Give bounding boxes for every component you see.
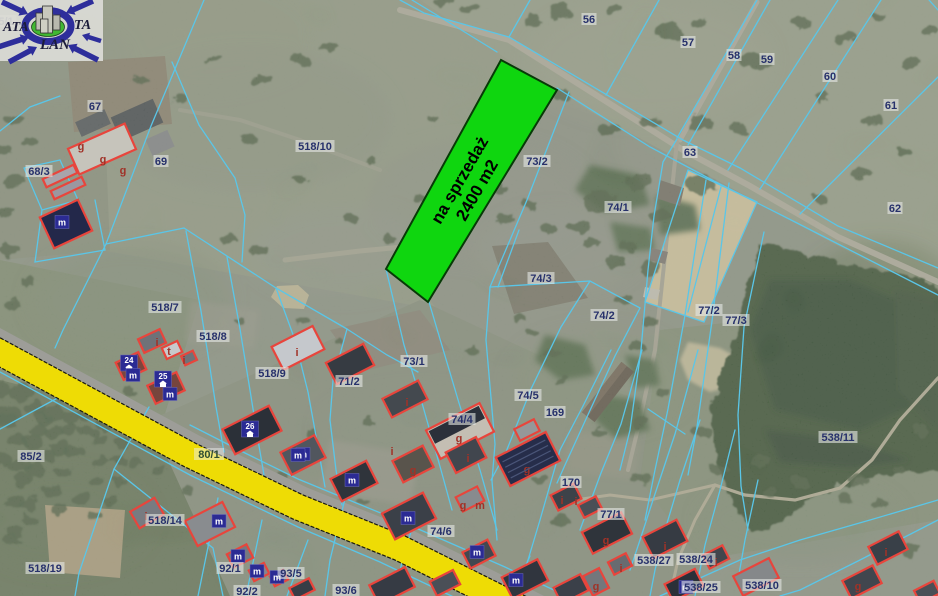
svg-text:518/10: 518/10 [298, 141, 332, 153]
svg-text:m: m [58, 218, 66, 228]
svg-text:i: i [295, 347, 298, 359]
svg-text:69: 69 [155, 156, 167, 168]
svg-text:74/4: 74/4 [451, 414, 473, 426]
svg-text:i: i [390, 446, 393, 458]
svg-text:i: i [466, 453, 469, 465]
svg-text:m: m [475, 500, 485, 512]
svg-text:63: 63 [684, 147, 696, 159]
svg-text:518/9: 518/9 [258, 368, 286, 380]
svg-text:g: g [120, 165, 127, 177]
svg-text:74/5: 74/5 [517, 390, 538, 402]
svg-text:i: i [182, 355, 185, 367]
svg-text:74/2: 74/2 [593, 310, 614, 322]
svg-text:71/2: 71/2 [338, 376, 359, 388]
svg-text:93/5: 93/5 [280, 568, 301, 580]
svg-text:i: i [619, 563, 622, 575]
svg-text:61: 61 [885, 100, 897, 112]
svg-text:g: g [78, 141, 85, 153]
svg-text:57: 57 [682, 37, 694, 49]
svg-text:92/1: 92/1 [219, 563, 240, 575]
svg-text:538/11: 538/11 [821, 432, 854, 444]
svg-text:m: m [253, 567, 261, 577]
svg-text:58: 58 [728, 50, 740, 62]
svg-text:59: 59 [761, 54, 773, 66]
svg-text:m: m [404, 514, 412, 524]
svg-text:g: g [855, 581, 862, 593]
svg-text:85/2: 85/2 [20, 451, 41, 463]
svg-text:538/10: 538/10 [745, 580, 779, 592]
svg-text:92/2: 92/2 [236, 586, 257, 596]
svg-text:m: m [166, 390, 174, 400]
svg-text:74/3: 74/3 [530, 273, 551, 285]
svg-text:26: 26 [246, 422, 255, 431]
svg-text:TA: TA [74, 18, 91, 33]
svg-text:m: m [473, 548, 481, 558]
svg-text:i: i [155, 337, 158, 349]
svg-text:169: 169 [546, 407, 564, 419]
svg-text:77/2: 77/2 [698, 305, 719, 317]
svg-text:538/25: 538/25 [684, 582, 718, 594]
svg-text:73/2: 73/2 [526, 156, 547, 168]
svg-text:g: g [100, 154, 107, 166]
svg-text:i: i [405, 397, 408, 409]
svg-text:i: i [884, 547, 887, 559]
svg-text:LAN: LAN [39, 37, 71, 53]
svg-text:518/14: 518/14 [148, 515, 183, 527]
svg-text:i: i [560, 495, 563, 507]
svg-text:538/27: 538/27 [637, 555, 671, 567]
svg-text:24: 24 [125, 356, 134, 365]
svg-text:60: 60 [824, 71, 836, 83]
svg-text:i: i [663, 541, 666, 553]
svg-text:80/1: 80/1 [198, 449, 219, 461]
svg-text:25: 25 [159, 372, 168, 381]
svg-text:g: g [456, 433, 463, 445]
svg-text:m: m [215, 517, 223, 527]
svg-text:68/3: 68/3 [28, 166, 49, 178]
svg-text:518/19: 518/19 [28, 563, 62, 575]
svg-text:g: g [593, 581, 600, 593]
svg-text:m: m [129, 371, 137, 381]
svg-text:56: 56 [583, 14, 595, 26]
svg-text:74/6: 74/6 [430, 526, 451, 538]
svg-text:t: t [167, 346, 171, 358]
svg-text:77/3: 77/3 [725, 315, 746, 327]
svg-text:m: m [234, 552, 242, 562]
svg-text:73/1: 73/1 [403, 356, 424, 368]
svg-text:93/6: 93/6 [335, 585, 356, 596]
svg-text:170: 170 [562, 477, 580, 489]
svg-text:518/8: 518/8 [199, 331, 227, 343]
svg-text:m: m [348, 476, 356, 486]
svg-text:i: i [574, 496, 577, 508]
svg-text:ATA: ATA [2, 20, 29, 35]
svg-text:m: m [512, 576, 520, 586]
svg-text:g: g [603, 535, 610, 547]
svg-text:m: m [294, 451, 302, 461]
svg-text:74/1: 74/1 [607, 202, 628, 214]
svg-text:62: 62 [889, 203, 901, 215]
svg-text:518/7: 518/7 [151, 302, 179, 314]
svg-text:538/24: 538/24 [679, 554, 714, 566]
svg-text:67: 67 [89, 101, 101, 113]
svg-text:77/1: 77/1 [600, 509, 621, 521]
svg-text:g: g [410, 465, 417, 477]
svg-text:g: g [460, 500, 467, 512]
